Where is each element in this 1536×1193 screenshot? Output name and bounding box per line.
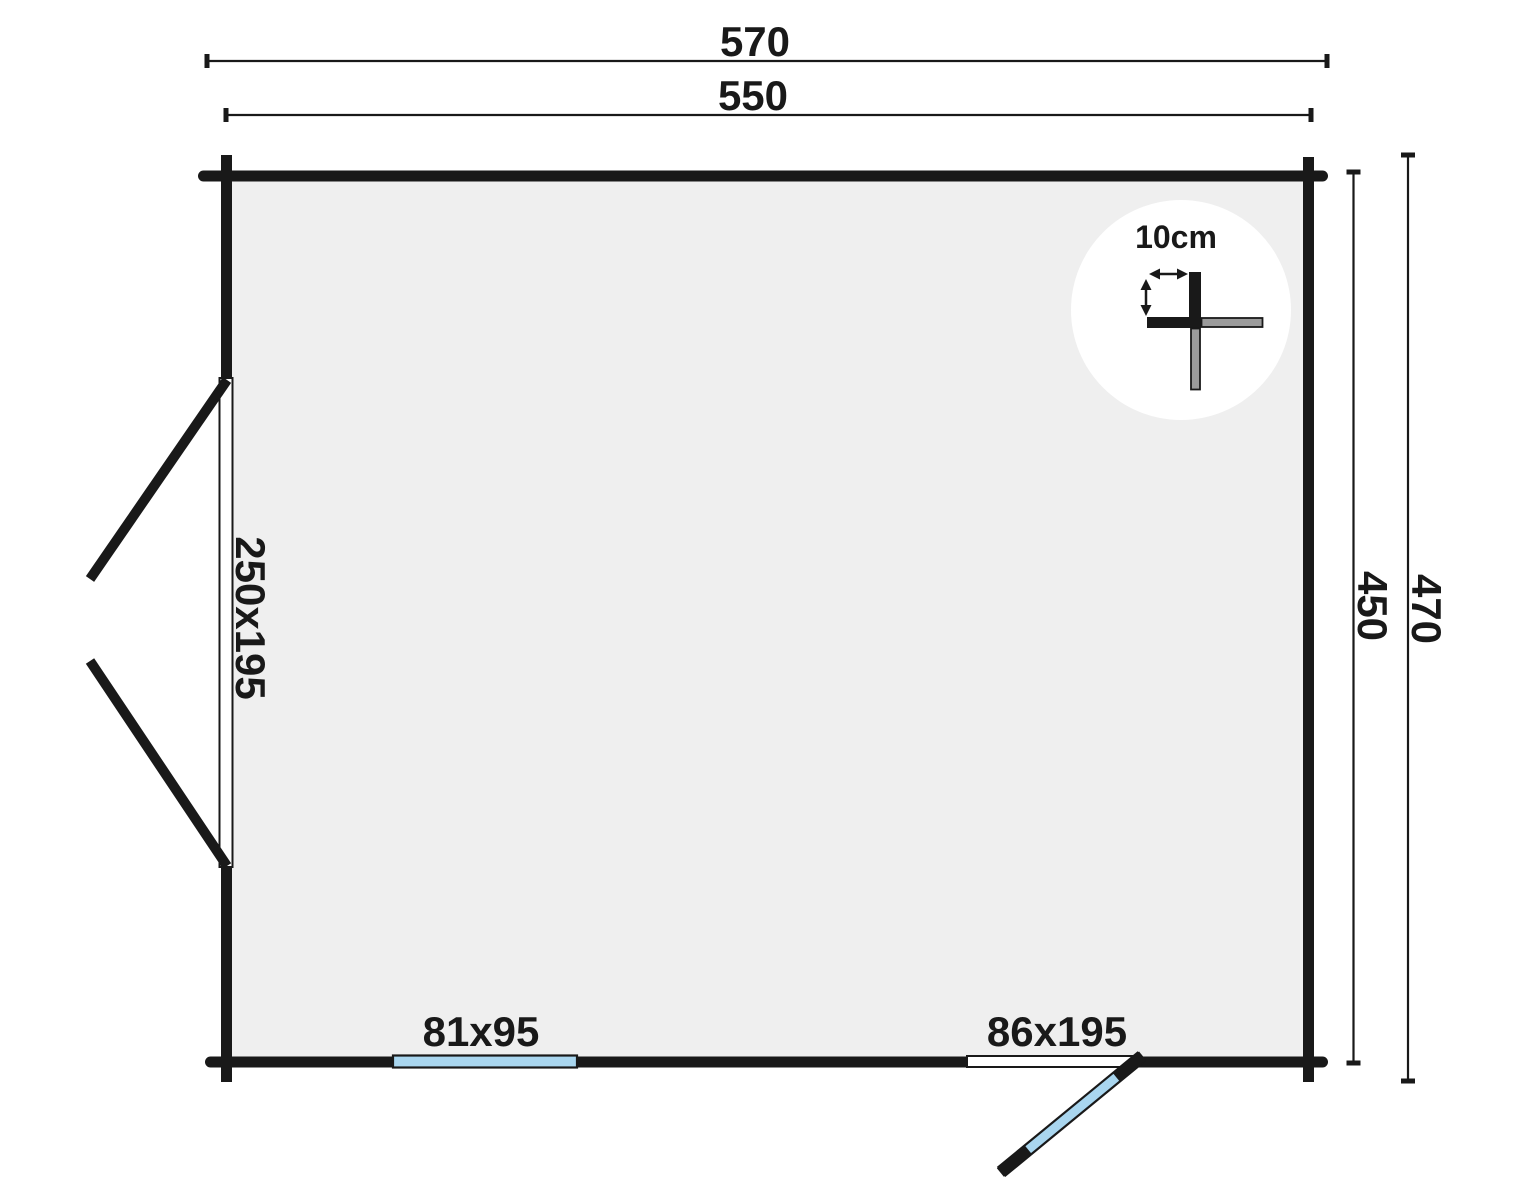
- single-door-leaf: [997, 1051, 1146, 1176]
- detail-log-right-arm: [1202, 318, 1263, 327]
- dim-label-inner-depth: 450: [1349, 571, 1396, 641]
- floor-plan-page: 10cm 250x195 81x95 86x195 570 550: [0, 0, 1536, 1193]
- dim-label-outer-width: 570: [720, 18, 790, 65]
- double-door-label: 250x195: [227, 536, 274, 700]
- double-door-leaf-lower: [90, 661, 227, 866]
- detail-log-bottom-arm: [1191, 329, 1200, 390]
- dim-label-inner-width: 550: [718, 72, 788, 119]
- single-door-opening: [967, 1056, 1137, 1067]
- single-door-leaf-tip-end: [997, 1145, 1032, 1176]
- dim-label-outer-depth: 470: [1403, 574, 1450, 644]
- single-door-label: 86x195: [987, 1008, 1127, 1055]
- window-label: 81x95: [423, 1008, 540, 1055]
- window: [393, 1056, 577, 1068]
- detail-label: 10cm: [1135, 219, 1217, 255]
- double-door-leaf-upper: [90, 380, 227, 579]
- detail-wall-left-arm: [1147, 317, 1201, 328]
- floor-plan-drawing: 10cm 250x195 81x95 86x195 570 550: [0, 0, 1536, 1193]
